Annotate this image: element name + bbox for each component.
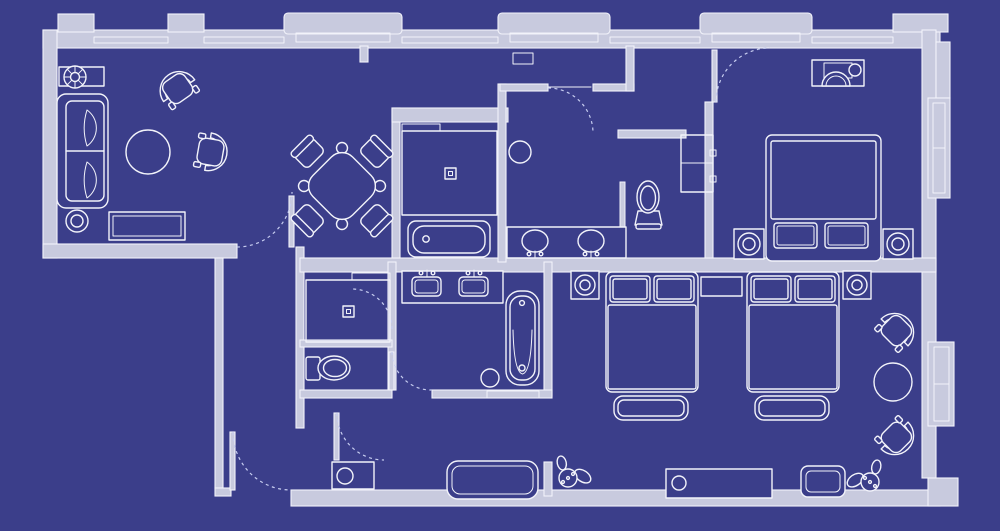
walk-in-shower [306,273,390,342]
wall-shelf [513,53,533,64]
square-side-table [801,466,845,497]
bath2-east-stub [544,462,552,496]
table-lamp [571,271,599,299]
utility-cabinet [332,462,374,489]
long-dresser [666,469,772,498]
bedroom1-west-wall [705,102,713,258]
vestibule-south-wall [618,130,686,138]
bedroom-1 [734,60,913,261]
bathroom-lower [306,270,539,398]
sofa [57,94,108,208]
double-bed [747,272,839,420]
round-stool [509,141,531,163]
door-leaf-bath2 [389,352,394,390]
nightstand-with-lamp [734,229,764,259]
armchair [873,414,922,463]
double-bed [606,272,698,420]
window-bay [700,13,812,34]
door-swing-entry [233,432,291,490]
dining-chair [358,202,394,238]
freestanding-bathtub [506,291,539,385]
door-swing-bedroom1 [716,48,770,102]
window-bay [284,13,402,34]
floor-plan: Hotel suite floor plan — blueprint style… [0,0,1000,531]
living-south-wall [43,244,237,258]
bath1-north-wall [500,84,548,91]
armchair [193,131,230,174]
dining-chair [358,134,394,170]
media-console [109,212,185,240]
double-sink-vanity [402,270,503,303]
potted-plant-icon [64,66,86,88]
toilet [306,356,350,380]
bathtub [408,221,490,257]
living-room [57,64,230,240]
corner-block-tr [936,42,950,98]
pilaster [58,14,94,32]
long-bench [447,461,538,499]
bath2-divider [300,340,392,347]
dining-area [290,134,394,238]
potted-plant-icon [556,455,593,487]
round-coffee-table [126,130,170,174]
double-sink-vanity [507,227,626,258]
entry-wall-stub [215,488,231,496]
toilet-partition [620,182,625,230]
interior-walls [296,46,936,496]
window-bay [498,13,610,34]
bath1-west-wall [498,84,506,262]
door-swing-shower2 [352,289,392,329]
armchair [153,64,202,111]
shower1-west-wall [392,108,400,258]
dining-pilaster-stub [360,46,368,62]
door-swing-living [237,192,292,247]
shared-nightstand [701,277,742,296]
door-swing-bath2 [392,352,432,390]
table-lamp [843,271,871,299]
round-table [874,363,912,401]
left-wall [43,30,57,258]
dining-chair [290,202,326,238]
round-stool [481,369,499,387]
toilet [635,181,662,229]
corner-block-br [928,478,958,506]
jog-wall [626,46,634,91]
bath2-south-wall [300,390,392,398]
pilaster-corner-tr [893,14,948,32]
door-swing-hall [337,413,384,460]
door-swing-bath1 [548,88,593,133]
round-side-table [66,210,88,232]
king-bed [766,135,881,261]
shower1-north-wall [392,108,508,122]
bath2-east-wall [544,262,552,396]
bathroom-upper [507,135,716,258]
dining-chair [290,134,326,170]
door-leaf-hall [334,413,339,460]
pilaster [168,14,204,32]
corridor-east-wall [296,247,304,428]
potted-plant-icon [845,459,882,491]
blueprint-canvas: Hotel suite floor plan — blueprint style… [0,0,1000,531]
walk-in-shower [402,124,497,215]
armchair [873,306,922,355]
nightstand-with-lamp [883,229,913,259]
bedroom-2 [571,271,921,498]
corridor-west-wall [215,258,223,488]
